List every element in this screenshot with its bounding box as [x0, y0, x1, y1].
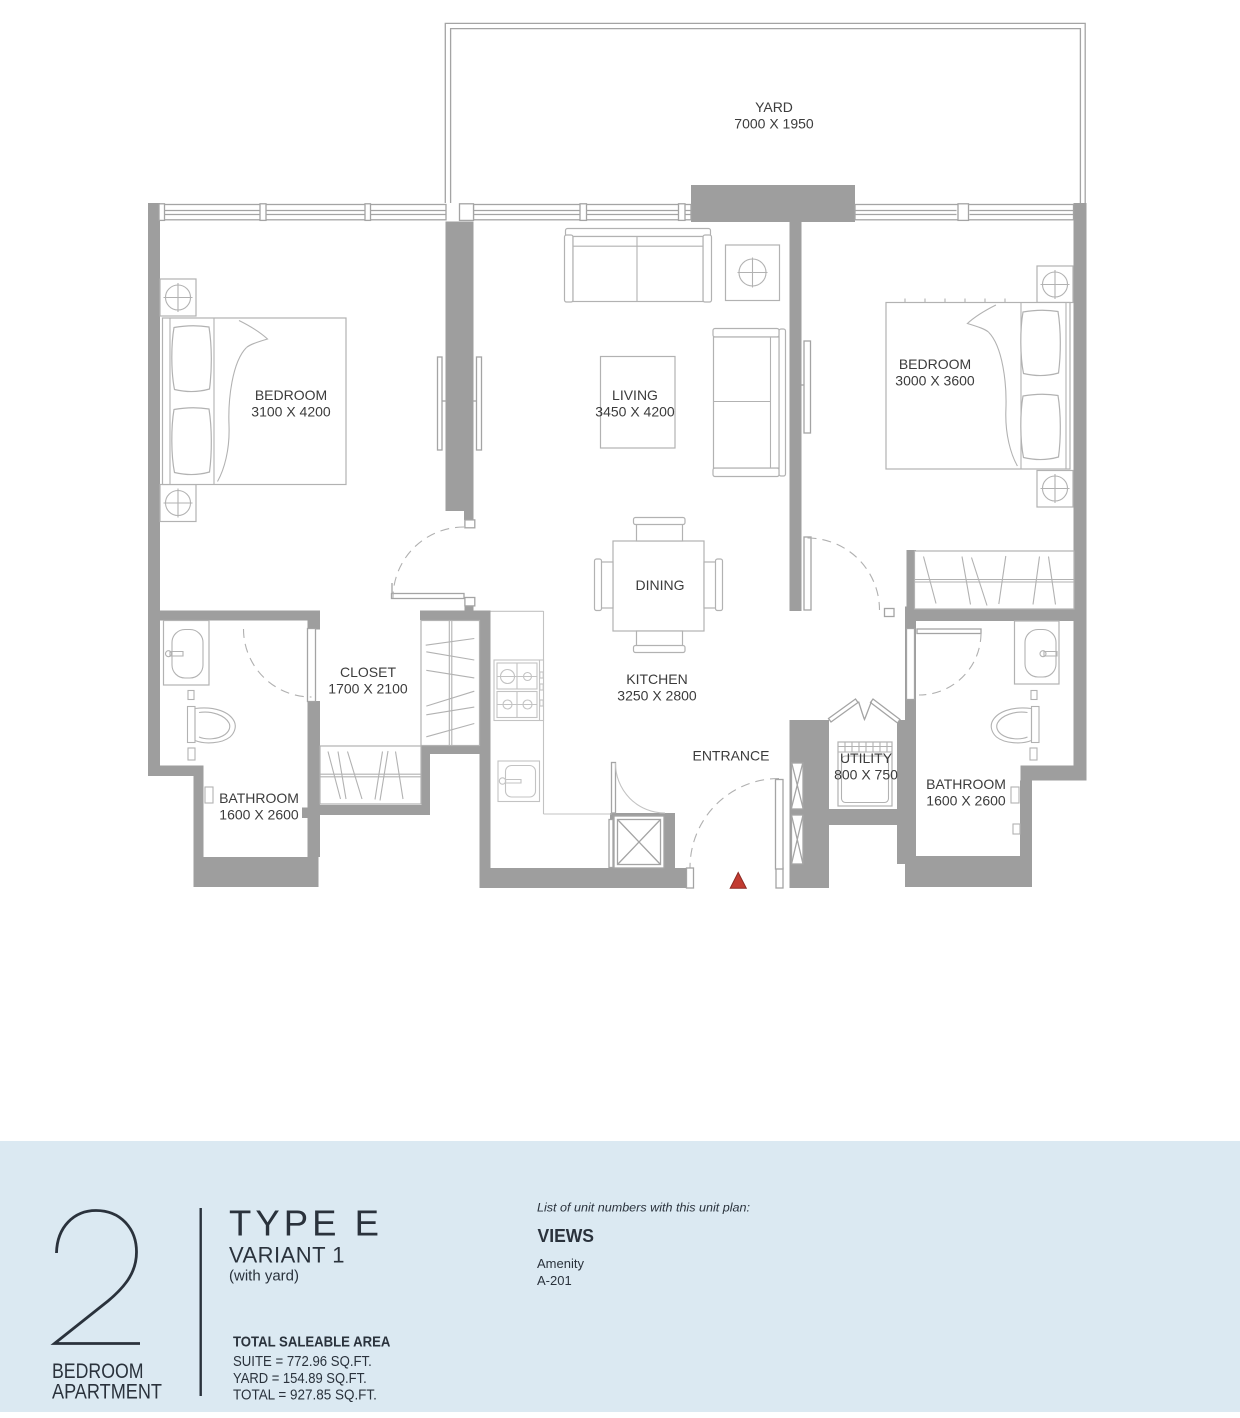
svg-text:SUITE = 772.96 SQ.FT.: SUITE = 772.96 SQ.FT.: [233, 1354, 372, 1370]
svg-text:1600 X 2600: 1600 X 2600: [926, 793, 1006, 809]
svg-text:YARD: YARD: [755, 99, 793, 115]
svg-text:LIVING: LIVING: [612, 387, 658, 403]
svg-text:800 X 750: 800 X 750: [834, 767, 898, 783]
svg-text:3250 X 2800: 3250 X 2800: [617, 688, 697, 704]
svg-text:ENTRANCE: ENTRANCE: [692, 748, 769, 764]
svg-text:DINING: DINING: [636, 577, 685, 593]
svg-text:BEDROOM: BEDROOM: [899, 356, 971, 372]
svg-text:3000 X 3600: 3000 X 3600: [895, 373, 975, 389]
svg-text:CLOSET: CLOSET: [340, 664, 396, 680]
svg-text:3100 X 4200: 3100 X 4200: [251, 404, 331, 420]
svg-text:UTILITY: UTILITY: [840, 750, 893, 766]
svg-text:VARIANT 1: VARIANT 1: [229, 1243, 345, 1268]
svg-text:KITCHEN: KITCHEN: [626, 671, 687, 687]
svg-text:List of unit numbers with this: List of unit numbers with this unit plan…: [537, 1201, 750, 1215]
svg-text:BATHROOM: BATHROOM: [926, 776, 1006, 792]
svg-text:7000 X 1950: 7000 X 1950: [734, 116, 814, 132]
svg-text:TOTAL = 927.85 SQ.FT.: TOTAL = 927.85 SQ.FT.: [233, 1387, 377, 1403]
svg-text:VIEWS: VIEWS: [538, 1225, 595, 1246]
svg-text:3450 X 4200: 3450 X 4200: [595, 404, 675, 420]
svg-text:BATHROOM: BATHROOM: [219, 790, 299, 806]
svg-text:1600 X 2600: 1600 X 2600: [219, 807, 299, 823]
svg-text:YARD = 154.89 SQ.FT.: YARD = 154.89 SQ.FT.: [233, 1371, 367, 1387]
svg-text:BEDROOM: BEDROOM: [255, 387, 327, 403]
svg-text:TOTAL SALEABLE AREA: TOTAL SALEABLE AREA: [233, 1334, 391, 1350]
svg-text:APARTMENT: APARTMENT: [52, 1380, 162, 1404]
svg-text:Amenity: Amenity: [537, 1256, 584, 1271]
svg-text:(with yard): (with yard): [229, 1268, 299, 1285]
svg-text:A-201: A-201: [537, 1273, 572, 1288]
svg-text:1700 X 2100: 1700 X 2100: [328, 681, 408, 697]
